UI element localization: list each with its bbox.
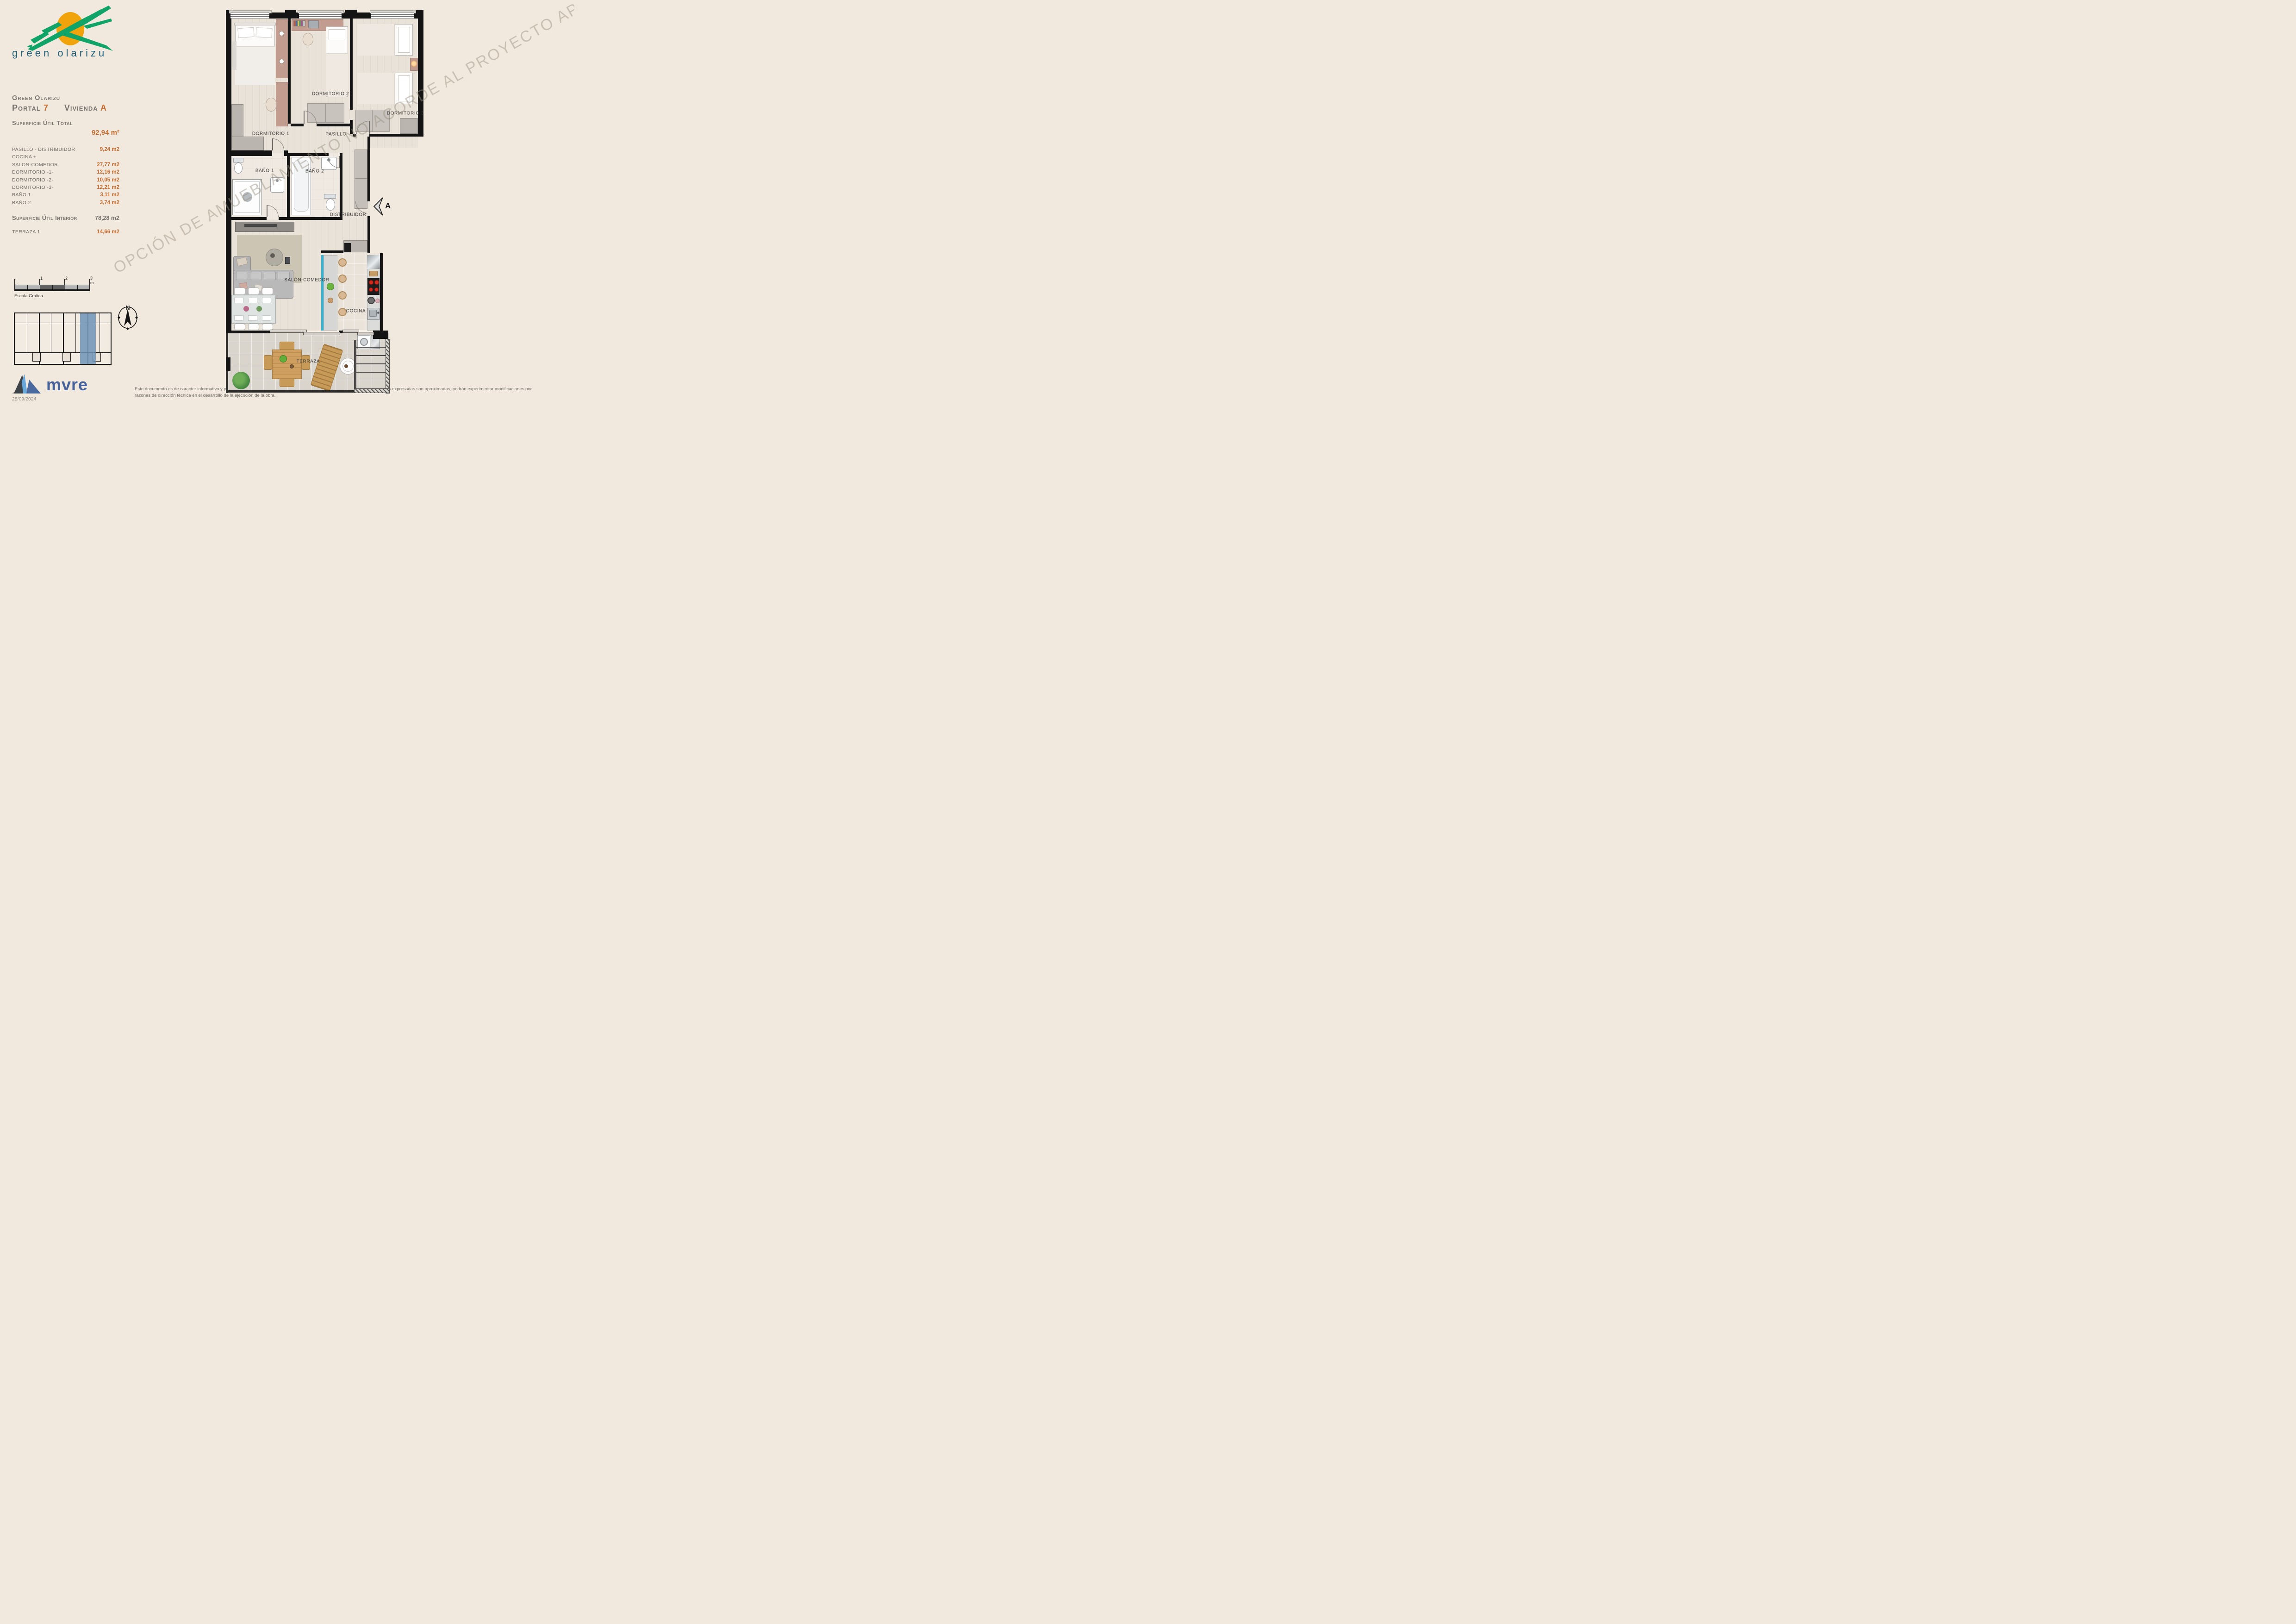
toilet bbox=[234, 162, 243, 174]
dining-chair bbox=[262, 324, 273, 330]
pillow bbox=[398, 75, 410, 101]
dining-chair bbox=[262, 287, 273, 295]
toilet bbox=[326, 199, 335, 211]
pillow bbox=[237, 27, 254, 38]
sliding-door bbox=[303, 332, 340, 335]
sliding-door bbox=[342, 330, 359, 333]
cup bbox=[344, 364, 348, 368]
place-setting bbox=[234, 315, 243, 321]
hall-wardrobe bbox=[355, 150, 367, 209]
divider bbox=[12, 224, 119, 225]
room-label-bano1: BAÑO 1 bbox=[255, 169, 274, 174]
place-setting bbox=[262, 315, 271, 321]
pot bbox=[367, 297, 375, 304]
corner-wardrobe bbox=[231, 137, 264, 150]
place-setting bbox=[248, 298, 257, 303]
bed-blanket bbox=[357, 24, 395, 56]
salad-plate bbox=[280, 355, 287, 362]
scale-bar: 1 2 3 m. Escala Gráfica bbox=[14, 276, 93, 300]
room-label-distribuidor: DISTRIBUIDOR bbox=[330, 212, 367, 218]
unit-title: Portal 7 Vivienda A bbox=[12, 103, 119, 113]
terrace-value: 14,66 m2 bbox=[97, 229, 119, 235]
desk-chair bbox=[266, 98, 277, 112]
dining-chair bbox=[234, 324, 245, 330]
terrace-label: TERRAZA 1 bbox=[12, 229, 40, 235]
scale-caption: Escala Gráfica bbox=[14, 294, 43, 299]
shaft bbox=[344, 243, 351, 252]
terrace-chair bbox=[280, 379, 294, 387]
faucet bbox=[377, 312, 380, 314]
wardrobe-knob bbox=[279, 31, 284, 36]
railing-hatch bbox=[386, 339, 390, 394]
compass-north-label: N bbox=[125, 304, 130, 311]
terrace-chair bbox=[280, 342, 294, 350]
site-key-plan bbox=[14, 312, 112, 365]
logo: green olarizu bbox=[14, 5, 113, 52]
stool bbox=[338, 291, 347, 300]
laptop bbox=[308, 20, 319, 28]
books bbox=[293, 20, 305, 26]
table-row: SALON-COMEDOR27,77 m2 bbox=[12, 162, 119, 169]
dining-chair bbox=[248, 324, 259, 330]
logo-brush-icon bbox=[14, 5, 113, 52]
table-row: BAÑO 23,74 m2 bbox=[12, 200, 119, 207]
burner bbox=[369, 287, 373, 292]
window bbox=[230, 12, 269, 19]
section-marker-label: A bbox=[385, 201, 391, 211]
room-label-salon: SALÓN-COMEDOR bbox=[284, 278, 329, 283]
vivienda-value: A bbox=[100, 103, 107, 112]
total-label: Superficie Útil Total bbox=[12, 119, 119, 126]
flowers bbox=[243, 306, 249, 312]
terrace-area-row: TERRAZA 1 14,66 m2 bbox=[12, 229, 119, 237]
portal-label: Portal bbox=[12, 103, 41, 112]
cup bbox=[290, 364, 294, 369]
info-panel: Green Olarizu Portal 7 Vivienda A Superf… bbox=[12, 94, 119, 237]
stool bbox=[338, 308, 347, 316]
floor-plan: A DORMITORIO 1 DORMITORIO 2 DORMITORIO 3… bbox=[226, 12, 423, 394]
sofa-cushion bbox=[250, 272, 262, 280]
dining-chair bbox=[248, 287, 259, 295]
salad-plate bbox=[327, 283, 334, 290]
washer-drum bbox=[360, 338, 368, 346]
terrace-table bbox=[272, 350, 302, 379]
stair-core bbox=[62, 352, 71, 362]
total-value: 92,94 m² bbox=[12, 129, 119, 137]
room-label-dormitorio1: DORMITORIO 1 bbox=[252, 131, 289, 137]
sofa-cushion bbox=[264, 272, 276, 280]
floorplan-sheet: green olarizu Green Olarizu Portal 7 Viv… bbox=[0, 0, 574, 406]
bathtub-inner bbox=[294, 160, 309, 212]
scale-tick-label: 1 bbox=[40, 276, 43, 281]
pillow bbox=[398, 27, 410, 53]
table-row: COCINA + bbox=[12, 154, 119, 162]
shower-drain bbox=[243, 192, 252, 202]
sliding-door bbox=[270, 330, 307, 333]
bowl bbox=[328, 298, 333, 303]
dining-chair bbox=[234, 287, 245, 295]
desk bbox=[400, 118, 418, 134]
date: 25/09/2024 bbox=[12, 396, 37, 402]
table-row: PASILLO - DISTRIBUIDOR9,24 m2 bbox=[12, 147, 119, 154]
section-arrow-icon bbox=[373, 197, 384, 216]
bed-blanket bbox=[235, 46, 275, 85]
project-title: Green Olarizu bbox=[12, 94, 119, 102]
fridge bbox=[367, 255, 380, 269]
interior-value: 78,28 m2 bbox=[95, 215, 119, 221]
bed-blanket bbox=[326, 53, 348, 97]
tv-sideboard bbox=[235, 222, 294, 232]
stool bbox=[338, 258, 347, 267]
table-row: DORMITORIO -3-12,21 m2 bbox=[12, 185, 119, 192]
room-label-dormitorio3: DORMITORIO 3 bbox=[387, 111, 424, 116]
mvre-wordmark: mvre bbox=[46, 375, 88, 394]
pillow bbox=[255, 27, 272, 38]
terrace-chair bbox=[264, 355, 272, 370]
plate bbox=[375, 299, 380, 303]
railing-post bbox=[354, 340, 356, 390]
cutting-board bbox=[369, 271, 378, 276]
coffee-table bbox=[266, 249, 283, 266]
toilet-tank bbox=[324, 194, 336, 199]
burner bbox=[369, 280, 373, 285]
place-setting bbox=[234, 298, 243, 303]
room-areas-table: PASILLO - DISTRIBUIDOR9,24 m2 COCINA + S… bbox=[12, 147, 119, 207]
table-row: DORMITORIO -2-10,05 m2 bbox=[12, 177, 119, 185]
portal-value: 7 bbox=[44, 103, 49, 112]
room-label-pasillo: PASILLO bbox=[325, 132, 346, 137]
highlighted-unit bbox=[80, 313, 96, 364]
table-row: BAÑO 13,11 m2 bbox=[12, 192, 119, 200]
stair-core bbox=[32, 352, 41, 362]
sink-bowl bbox=[369, 310, 377, 317]
scale-tick-label: 2 bbox=[65, 276, 68, 281]
tv bbox=[244, 224, 277, 227]
scale-tick-label: 3 m. bbox=[90, 276, 95, 285]
lamp bbox=[411, 61, 417, 67]
window bbox=[371, 12, 414, 19]
wardrobe-knob bbox=[279, 59, 284, 64]
table-row: DORMITORIO -1-12,16 m2 bbox=[12, 169, 119, 177]
place-setting bbox=[262, 298, 271, 303]
decor-bowl bbox=[270, 253, 275, 258]
interior-label: Superficie Útil Interior bbox=[12, 214, 77, 221]
scale-bar-segments bbox=[14, 285, 90, 290]
desk bbox=[276, 82, 288, 126]
wardrobe bbox=[276, 19, 288, 78]
room-label-bano2: BAÑO 2 bbox=[305, 169, 324, 174]
interior-area-row: Superficie Útil Interior 78,28 m2 bbox=[12, 214, 119, 221]
room-label-dormitorio2: DORMITORIO 2 bbox=[312, 92, 349, 97]
burner bbox=[374, 280, 379, 285]
stool bbox=[338, 275, 347, 283]
railing-hatch bbox=[354, 388, 390, 393]
desk-chair bbox=[303, 33, 313, 45]
room-label-cocina: COCINA bbox=[346, 309, 366, 314]
bed-throw bbox=[232, 41, 236, 70]
flowers bbox=[256, 306, 262, 312]
sofa-cushion bbox=[236, 272, 248, 280]
divider bbox=[12, 141, 119, 142]
compass-icon: N bbox=[117, 303, 140, 331]
sliding-door bbox=[357, 332, 374, 335]
logo-wordmark: green olarizu bbox=[12, 47, 107, 59]
mvre-logo-icon bbox=[12, 374, 44, 394]
tablet bbox=[285, 257, 290, 264]
vivienda-label: Vivienda bbox=[64, 103, 98, 112]
faucet bbox=[276, 179, 279, 182]
toilet-tank bbox=[233, 158, 243, 162]
window bbox=[299, 12, 342, 19]
room-label-terraza: TERRAZA bbox=[297, 359, 320, 364]
burner bbox=[374, 287, 379, 292]
pillow bbox=[329, 29, 345, 40]
divider bbox=[12, 211, 119, 212]
place-setting bbox=[248, 315, 257, 321]
plant bbox=[232, 372, 250, 389]
bed-blanket bbox=[357, 73, 395, 104]
kitchen-peninsula bbox=[324, 255, 337, 331]
